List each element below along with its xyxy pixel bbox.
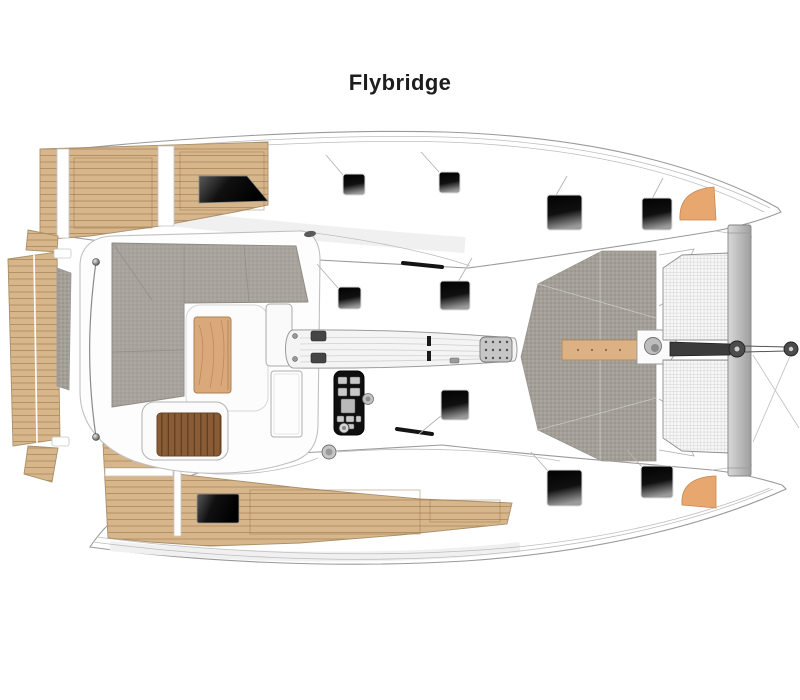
deck-hatch	[441, 390, 469, 420]
companionway-opening	[197, 494, 239, 523]
sun-lounger	[142, 402, 228, 460]
trampoline-net-upper	[663, 253, 728, 340]
boom	[286, 330, 518, 368]
handrail	[397, 429, 432, 434]
deck-hatch	[338, 287, 361, 309]
deck-hatch	[642, 198, 672, 230]
helm-bench	[271, 371, 302, 437]
boom-bolt	[293, 357, 298, 362]
bowsprit-step	[562, 340, 638, 360]
deck-hatch	[343, 174, 365, 195]
gooseneck-fitting	[480, 337, 512, 362]
boom-block	[311, 353, 326, 363]
console-screen	[341, 399, 355, 413]
coffee-table	[194, 317, 231, 393]
deck-plan-drawing	[0, 0, 800, 700]
deck-hatch	[641, 466, 673, 498]
transom-steps	[57, 268, 71, 390]
boom-bolt	[293, 334, 298, 339]
deck-hatch	[547, 470, 582, 506]
swim-step-bottom	[24, 446, 58, 482]
deck-hatch	[439, 172, 460, 193]
deck-hatch	[547, 195, 582, 230]
trampoline-net-lower	[663, 360, 728, 453]
stanchion-ball	[93, 259, 100, 266]
stanchion-ball	[93, 434, 100, 441]
deck-hatch	[440, 281, 470, 310]
boom-block	[311, 331, 326, 341]
